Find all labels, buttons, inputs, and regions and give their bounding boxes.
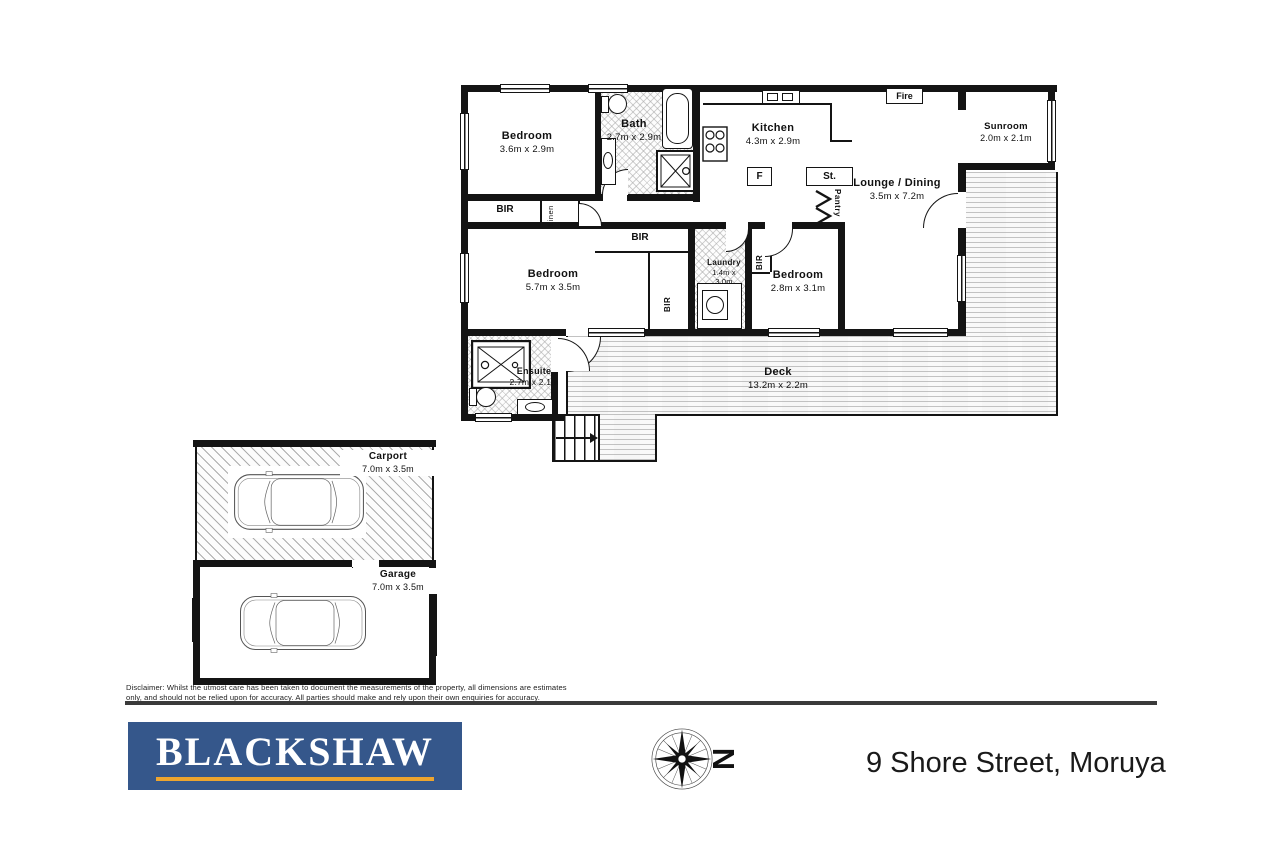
room-dims: 2.8m x 3.1m <box>738 283 858 295</box>
window <box>460 253 469 303</box>
fireplace-label: Fire <box>896 91 913 101</box>
room-name: Bedroom <box>483 268 623 282</box>
wall <box>958 92 966 110</box>
bir-closet-front <box>468 226 540 228</box>
window <box>588 328 645 337</box>
room-name: Bedroom <box>738 269 858 283</box>
room-name: Lounge / Dining <box>827 177 967 191</box>
linen-label: Linen <box>546 198 555 226</box>
door-arc-bedroom3 <box>765 229 793 257</box>
room-name: Carport <box>340 451 436 464</box>
room-dims: 2.7m x 2.1m <box>494 377 574 388</box>
window <box>768 328 820 337</box>
door-arc-linen <box>579 203 602 226</box>
toilet-bowl <box>608 94 627 114</box>
fridge-label: F <box>756 171 762 182</box>
garage-wall <box>193 560 200 685</box>
deck-right-wing <box>966 172 1058 336</box>
room-label-carport: Carport 7.0m x 3.5m <box>340 450 436 476</box>
compass-rose-icon <box>650 727 714 791</box>
wall <box>461 194 603 201</box>
laundry-tub-bowl <box>706 296 724 314</box>
bir-label-vertical: BIR <box>755 244 764 270</box>
footer-divider <box>125 701 1157 705</box>
room-dims: 7.0m x 3.5m <box>352 582 444 593</box>
ensuite-toilet-bowl <box>476 387 496 407</box>
room-name: Kitchen <box>703 122 843 136</box>
room-name: Sunroom <box>946 121 1066 133</box>
window <box>475 413 512 422</box>
room-dims: 13.2m x 2.2m <box>708 380 848 392</box>
room-dims: 2.0m x 2.1m <box>946 133 1066 144</box>
brand-name: BLACKSHAW <box>156 732 434 772</box>
floorplan-page: Fire F St. BIR BIR Linen Pantry BIR BIR … <box>0 0 1280 853</box>
stairs-direction-line <box>556 437 592 439</box>
room-label-garage: Garage 7.0m x 3.5m <box>352 568 444 594</box>
room-name: Deck <box>708 366 848 380</box>
window <box>500 84 550 93</box>
room-dims: 2.7m x 2.9m <box>605 132 663 144</box>
bir-closet-front <box>595 251 688 253</box>
stairs-direction-arrowhead <box>590 433 598 443</box>
car-carport <box>232 468 366 536</box>
disclaimer-line-1: Disclaimer: Whilst the utmost care has b… <box>126 683 606 693</box>
linen-closet-side <box>540 196 542 227</box>
bir-label-vertical: BIR <box>663 282 672 312</box>
room-name: Ensuite <box>494 366 574 377</box>
window <box>957 255 966 302</box>
window <box>588 84 628 93</box>
kitchen-sink-basin <box>782 93 793 101</box>
bir-closet-front <box>648 253 650 330</box>
wall <box>748 222 765 229</box>
room-label-bedroom-3: Bedroom 2.8m x 3.1m <box>738 269 858 295</box>
deck-landing <box>600 414 657 462</box>
room-name: Bedroom <box>457 130 597 144</box>
room-label-deck: Deck 13.2m x 2.2m <box>708 366 848 392</box>
room-label-sunroom: Sunroom 2.0m x 2.1m <box>946 121 1066 144</box>
brand-gold-underline <box>156 777 434 781</box>
bathtub-inner <box>666 93 689 144</box>
room-dims: 4.3m x 2.9m <box>703 136 843 148</box>
bath-vanity-basin <box>603 152 613 169</box>
room-label-lounge-dining: Lounge / Dining 3.5m x 7.2m <box>827 177 967 203</box>
room-dims: 5.7m x 3.5m <box>483 282 623 294</box>
room-dims: 3.5m x 7.2m <box>827 191 967 203</box>
window <box>893 328 948 337</box>
fireplace-box: Fire <box>886 88 923 104</box>
garage-wall <box>193 560 352 567</box>
room-dims: 3.6m x 2.9m <box>457 144 597 156</box>
room-label-kitchen: Kitchen 4.3m x 2.9m <box>703 122 843 148</box>
car-garage <box>238 586 368 660</box>
room-name: Garage <box>352 569 444 582</box>
wall <box>627 194 700 201</box>
carport-top-wall <box>193 440 436 447</box>
property-address: 9 Shore Street, Moruya <box>866 747 1166 780</box>
bir-label: BIR <box>480 204 530 215</box>
garage-wall <box>379 560 436 567</box>
bir-label: BIR <box>615 232 665 243</box>
wall <box>461 329 566 336</box>
ensuite-vanity-basin <box>525 402 545 412</box>
wall <box>461 85 1057 92</box>
kitchen-sink-basin <box>767 93 778 101</box>
room-label-ensuite: Ensuite 2.7m x 2.1m <box>494 366 574 388</box>
sunroom-bottom-wall <box>958 163 1055 170</box>
room-name: Bath <box>605 118 663 132</box>
room-label-bath: Bath 2.7m x 2.9m <box>605 118 663 144</box>
wall <box>688 229 695 336</box>
room-dims: 7.0m x 3.5m <box>340 464 436 475</box>
compass-north-label: N <box>706 742 740 776</box>
disclaimer-text: Disclaimer: Whilst the utmost care has b… <box>126 683 606 703</box>
bath-shower <box>656 150 695 192</box>
room-label-bedroom-1: Bedroom 3.6m x 2.9m <box>457 130 597 156</box>
room-name: Laundry <box>705 258 743 268</box>
brand-logo: BLACKSHAW <box>128 722 462 790</box>
room-label-bedroom-2: Bedroom 5.7m x 3.5m <box>483 268 623 294</box>
carport-edge <box>195 447 197 560</box>
fridge-box: F <box>747 167 772 186</box>
